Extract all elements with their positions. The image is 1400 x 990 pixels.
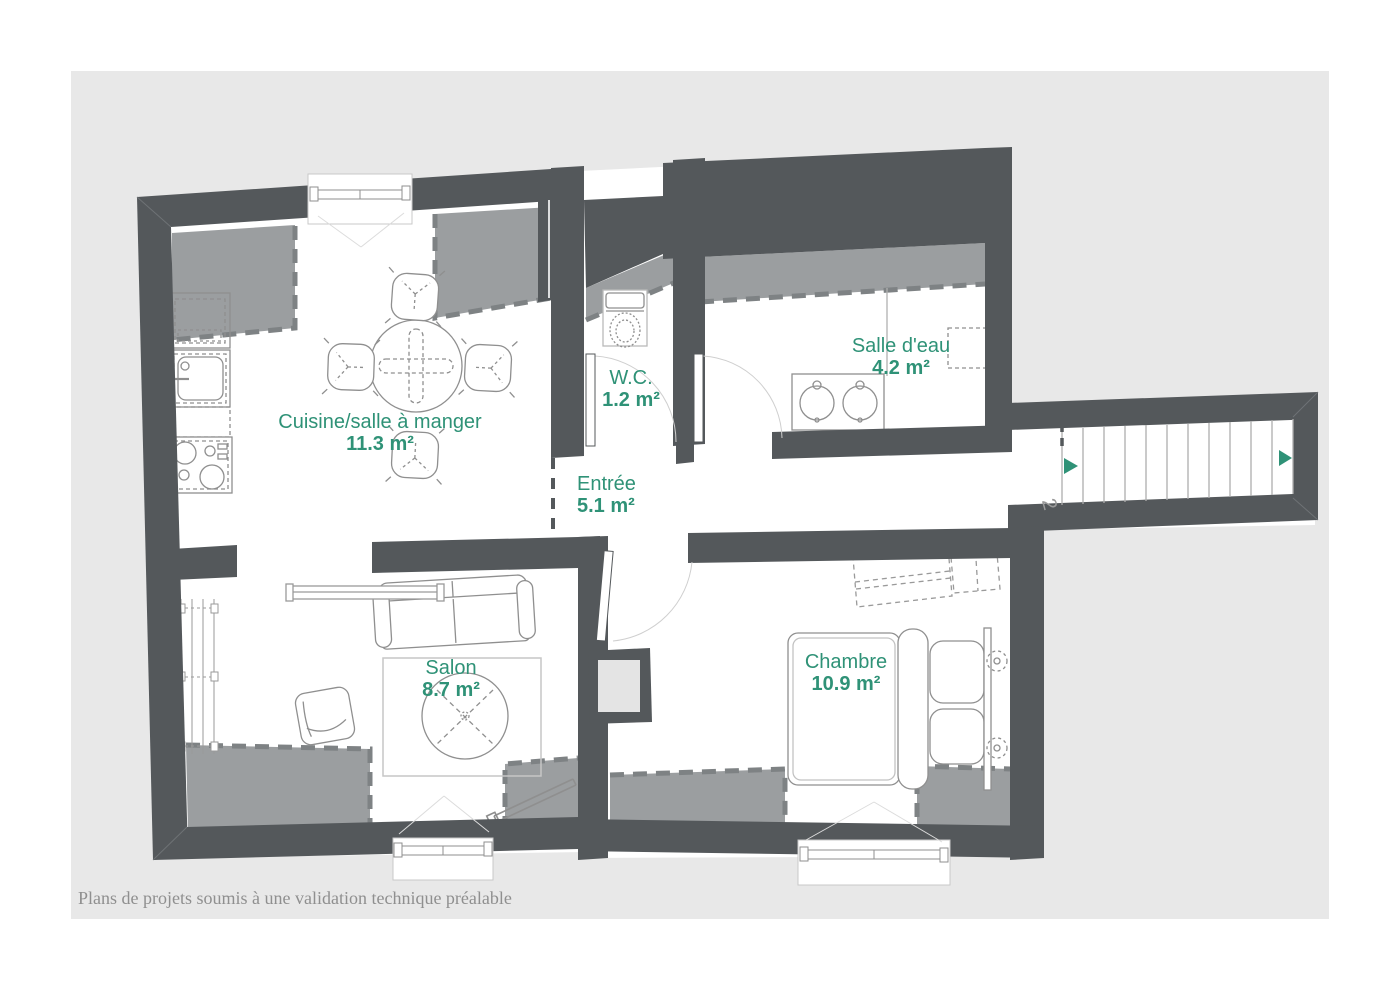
room-area: 8.7 m² bbox=[422, 679, 480, 701]
room-label-salle-deau: Salle d'eau 4.2 m² bbox=[852, 335, 950, 379]
room-label-cuisine: Cuisine/salle à manger 11.3 m² bbox=[278, 411, 481, 455]
bed-headboard bbox=[984, 628, 991, 790]
disclaimer-caption: Plans de projets soumis à une validation… bbox=[78, 888, 512, 909]
bed-pillow bbox=[930, 709, 984, 764]
bathroom-shelf bbox=[948, 328, 986, 368]
room-area: 10.9 m² bbox=[805, 673, 887, 695]
room-name: Entrée bbox=[577, 473, 636, 495]
room-name: Salle d'eau bbox=[852, 335, 950, 357]
duct-shaft-interior bbox=[598, 660, 640, 712]
room-label-entree: Entrée 5.1 m² bbox=[577, 473, 636, 517]
room-label-chambre: Chambre 10.9 m² bbox=[805, 651, 887, 695]
room-label-wc: W.C. 1.2 m² bbox=[602, 367, 660, 411]
floor-plan-page: { "palette": { "canvas_background": "#e8… bbox=[0, 0, 1400, 990]
kitchen-stove bbox=[170, 437, 232, 493]
wc-toilet bbox=[603, 290, 647, 347]
kitchen-salon-sliding-door bbox=[286, 584, 444, 601]
bed-pillow bbox=[930, 641, 984, 703]
room-area: 11.3 m² bbox=[278, 433, 481, 455]
dining-table bbox=[370, 320, 462, 412]
room-name: Salon bbox=[422, 657, 480, 679]
room-name: Chambre bbox=[805, 651, 887, 673]
room-area: 1.2 m² bbox=[602, 389, 660, 411]
room-area: 4.2 m² bbox=[852, 357, 950, 379]
room-name: Cuisine/salle à manger bbox=[278, 411, 481, 433]
salon-armchair bbox=[294, 686, 356, 747]
room-area: 5.1 m² bbox=[577, 495, 636, 517]
floor-plan-drawing bbox=[0, 0, 1400, 990]
room-name: W.C. bbox=[602, 367, 660, 389]
room-label-salon: Salon 8.7 m² bbox=[422, 657, 480, 701]
